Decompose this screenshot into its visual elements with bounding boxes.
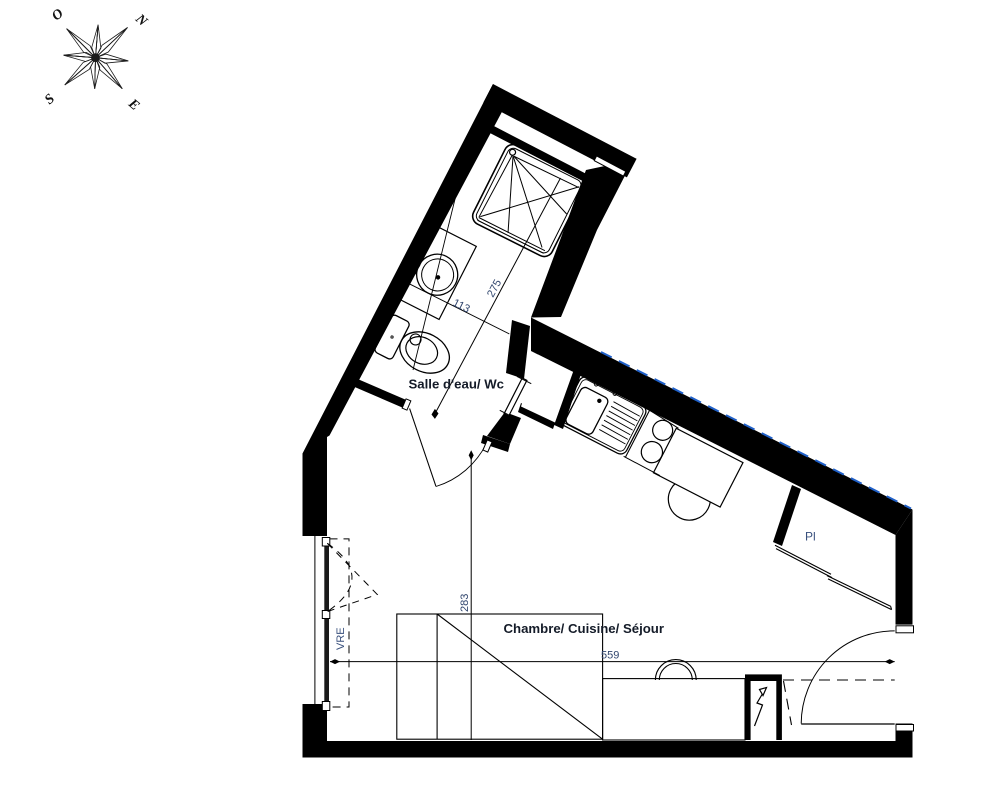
svg-text:Pl: Pl [805,530,816,544]
svg-text:Chambre/ Cuisine/ Séjour: Chambre/ Cuisine/ Séjour [504,621,665,636]
svg-text:283: 283 [459,594,471,612]
svg-text:Salle d'eau/ Wc: Salle d'eau/ Wc [409,377,504,392]
svg-text:VRE: VRE [335,627,347,650]
svg-text:559: 559 [601,650,619,662]
